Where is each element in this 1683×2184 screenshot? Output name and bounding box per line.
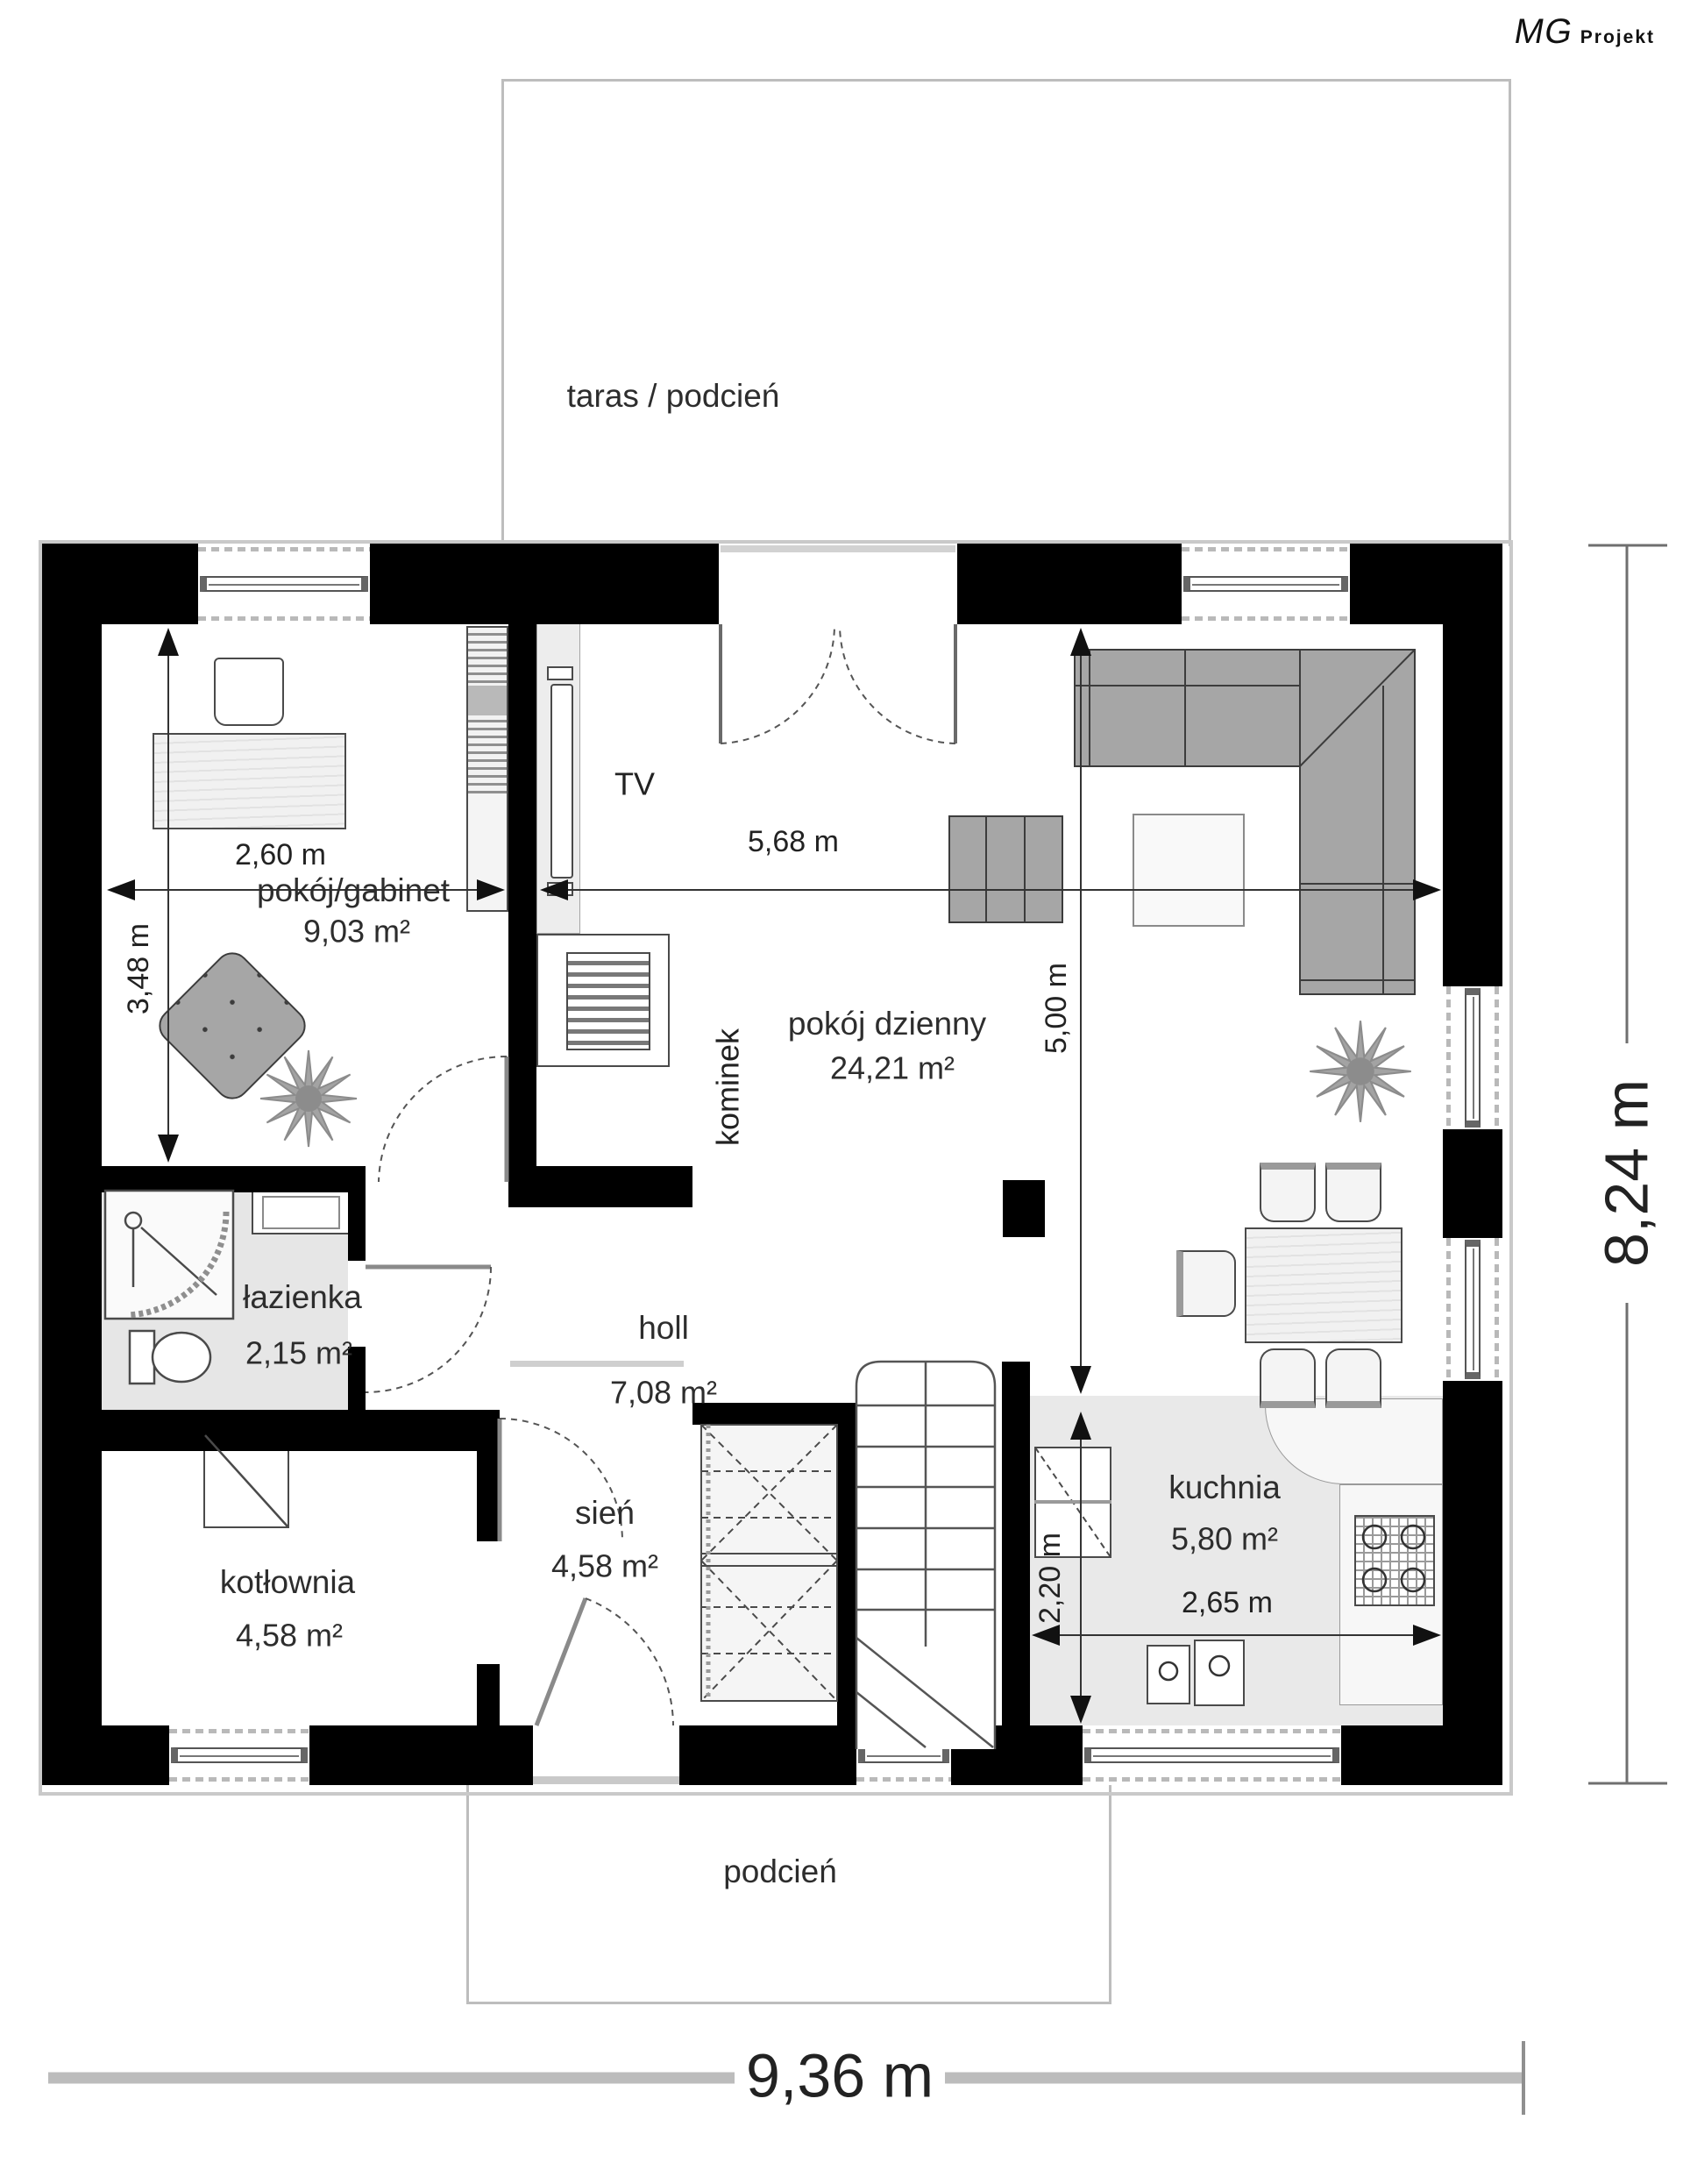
tv-screen	[550, 684, 573, 879]
dim-house-width-value: 9,36 m	[746, 2041, 934, 2109]
window-sill	[856, 1777, 951, 1782]
kitchen-sink-basin-left	[1147, 1645, 1190, 1704]
dining-chair-left	[1176, 1250, 1236, 1317]
dim-house-width: 9,36 m	[746, 2038, 934, 2115]
kitchen-sink-basin-right	[1194, 1640, 1245, 1706]
room-area-kuchnia: 5,80 m²	[1171, 1519, 1278, 1559]
room-label-holl: holl	[638, 1308, 689, 1348]
wall-gabinet-south	[102, 1166, 366, 1192]
tv-label-text: TV	[614, 766, 655, 802]
wall-right-2	[1443, 1129, 1502, 1238]
dim-dzienny-depth-value: 5,00 m	[1040, 963, 1073, 1054]
closet-band	[468, 686, 507, 715]
window-dining-right-lower	[1443, 1238, 1502, 1381]
room-name-lazienka: łazienka	[243, 1279, 362, 1315]
dim-gabinet-depth-value: 3,48 m	[122, 923, 155, 1014]
wall-bottom-2	[309, 1725, 533, 1785]
porch-outline	[466, 1785, 1111, 2004]
room-label-podcien: podcień	[723, 1852, 837, 1892]
dining-table	[1245, 1227, 1402, 1343]
window-sill	[198, 547, 370, 551]
window-sill	[169, 1729, 309, 1733]
window-living-top	[1182, 544, 1350, 624]
wall-gabinet-east	[508, 624, 536, 1192]
room-name-taras: taras / podcień	[567, 378, 780, 414]
wall-stairs-east	[1002, 1362, 1030, 1725]
window-glass	[1084, 1747, 1339, 1763]
wall-right-1	[1443, 544, 1502, 986]
dining-chair-bottom-left	[1260, 1348, 1316, 1408]
logo-projekt: Projekt	[1580, 27, 1655, 48]
room-name-kotlownia: kotłownia	[220, 1564, 355, 1600]
tv-stand	[948, 815, 1063, 923]
hall-sien-threshold	[510, 1361, 684, 1367]
window-sill	[1182, 616, 1350, 621]
wall-bottom-5	[1341, 1725, 1502, 1785]
desk	[153, 733, 346, 829]
fixture-label-tv: TV	[614, 765, 655, 804]
wall-boiler-east-lower	[477, 1664, 500, 1725]
window-sill	[1083, 1777, 1341, 1782]
sofa-right-section	[1299, 649, 1416, 995]
room-label-kotlownia: kotłownia	[220, 1562, 355, 1603]
terrace-door-threshold	[721, 545, 955, 552]
dim-kuchnia-width: 2,65 m	[1182, 1584, 1273, 1622]
stove-icon	[1354, 1515, 1435, 1606]
room-area-holl: 7,08 m²	[610, 1373, 717, 1412]
front-door-threshold	[533, 1776, 679, 1784]
tv-speaker-bottom	[547, 882, 573, 896]
room-label-gabinet: pokój/gabinet	[257, 871, 450, 911]
room-name-gabinet: pokój/gabinet	[257, 872, 450, 908]
tv-speaker-top	[547, 666, 573, 680]
dining-chair-top-right	[1325, 1163, 1381, 1222]
wall-bath-east-upper	[348, 1192, 366, 1261]
window-sill	[1083, 1729, 1341, 1733]
room-name-podcien: podcień	[723, 1853, 837, 1889]
dim-house-depth: 8,24 m	[1588, 1079, 1665, 1267]
window-living-right-upper	[1443, 986, 1502, 1129]
window-sill	[1446, 1238, 1451, 1381]
window-glass	[171, 1747, 308, 1763]
room-name-dzienny: pokój dzienny	[788, 1006, 986, 1042]
floor-plan: MG Projekt	[0, 0, 1683, 2184]
room-area-sien-value: 4,58 m²	[551, 1548, 658, 1584]
room-area-kuchnia-value: 5,80 m²	[1171, 1521, 1278, 1557]
desk-chair	[214, 658, 284, 726]
wall-top-3	[957, 544, 1182, 624]
room-area-gabinet: 9,03 m²	[303, 912, 410, 951]
room-name-kuchnia: kuchnia	[1168, 1469, 1281, 1505]
wall-top-2	[370, 544, 719, 624]
room-area-sien: 4,58 m²	[551, 1547, 658, 1586]
wall-bottom-1	[42, 1725, 169, 1785]
room-area-lazienka: 2,15 m²	[245, 1334, 352, 1373]
wall-top-1	[42, 544, 198, 624]
room-name-sien: sień	[575, 1495, 635, 1531]
window-sill	[198, 616, 370, 621]
room-area-kotlownia: 4,58 m²	[236, 1616, 343, 1655]
dim-dzienny-depth: 5,00 m	[1038, 963, 1076, 1054]
window-kitchen-bottom	[1083, 1725, 1341, 1785]
wall-hall-stub	[508, 1166, 692, 1207]
wall-bottom-4	[951, 1725, 1083, 1785]
pillar	[1003, 1180, 1045, 1237]
window-glass	[1465, 1240, 1481, 1379]
wall-wardrobe-east	[837, 1425, 856, 1725]
bathroom-sink-basin	[262, 1196, 340, 1229]
dim-kuchnia-depth: 2,20 m	[1032, 1533, 1069, 1624]
room-area-holl-value: 7,08 m²	[610, 1375, 717, 1411]
fixture-label-kominek: kominek	[708, 1028, 748, 1146]
room-label-taras: taras / podcień	[567, 376, 780, 416]
terrace-outline	[501, 79, 1511, 546]
dining-chair-bottom-right	[1325, 1348, 1381, 1408]
room-label-lazienka: łazienka	[243, 1277, 362, 1318]
wall-wardrobe-north	[692, 1403, 856, 1425]
room-label-sien: sień	[575, 1493, 635, 1533]
wall-left	[42, 544, 102, 1785]
logo-mg: MG	[1511, 12, 1576, 52]
room-label-dzienny: pokój dzienny	[788, 1004, 986, 1044]
window-sill	[169, 1777, 309, 1782]
dim-dzienny-width-value: 5,68 m	[748, 825, 839, 858]
window-glass	[1465, 988, 1481, 1128]
kominek-label-text: kominek	[710, 1028, 746, 1146]
fireplace-grill	[566, 952, 650, 1050]
room-area-kotlownia-value: 4,58 m²	[236, 1618, 343, 1654]
dining-chair-top-left	[1260, 1163, 1316, 1222]
window-glass	[1183, 576, 1348, 592]
window-sill	[1446, 986, 1451, 1129]
window-sill	[1495, 986, 1499, 1129]
window-stairs-bottom	[856, 1725, 951, 1785]
mg-projekt-logo: MG Projekt	[1515, 12, 1655, 52]
dim-kuchnia-depth-value: 2,20 m	[1033, 1533, 1067, 1624]
wall-boiler-east-upper	[477, 1410, 500, 1541]
room-area-dzienny-value: 24,21 m²	[830, 1050, 955, 1086]
dim-gabinet-width-value: 2,60 m	[235, 838, 326, 871]
dim-gabinet-depth: 3,48 m	[120, 923, 158, 1014]
dim-gabinet-width: 2,60 m	[235, 836, 326, 874]
window-boiler-bottom	[169, 1725, 309, 1785]
room-area-gabinet-value: 9,03 m²	[303, 914, 410, 950]
wall-boiler-north	[102, 1410, 477, 1451]
window-sill	[1182, 547, 1350, 551]
window-sill	[856, 1729, 951, 1733]
wall-right-3	[1443, 1381, 1502, 1785]
window-glass	[200, 576, 368, 592]
window-gabinet-top	[198, 544, 370, 624]
coffee-table	[1133, 814, 1245, 927]
window-glass	[858, 1747, 949, 1763]
dim-house-depth-value: 8,24 m	[1592, 1079, 1660, 1267]
room-name-holl: holl	[638, 1310, 689, 1346]
room-label-kuchnia: kuchnia	[1168, 1468, 1281, 1508]
window-sill	[1495, 1238, 1499, 1381]
dim-dzienny-width: 5,68 m	[748, 823, 839, 861]
dim-kuchnia-width-value: 2,65 m	[1182, 1586, 1273, 1619]
room-area-dzienny: 24,21 m²	[830, 1049, 955, 1088]
wall-bottom-3	[679, 1725, 856, 1785]
room-area-lazienka-value: 2,15 m²	[245, 1335, 352, 1371]
